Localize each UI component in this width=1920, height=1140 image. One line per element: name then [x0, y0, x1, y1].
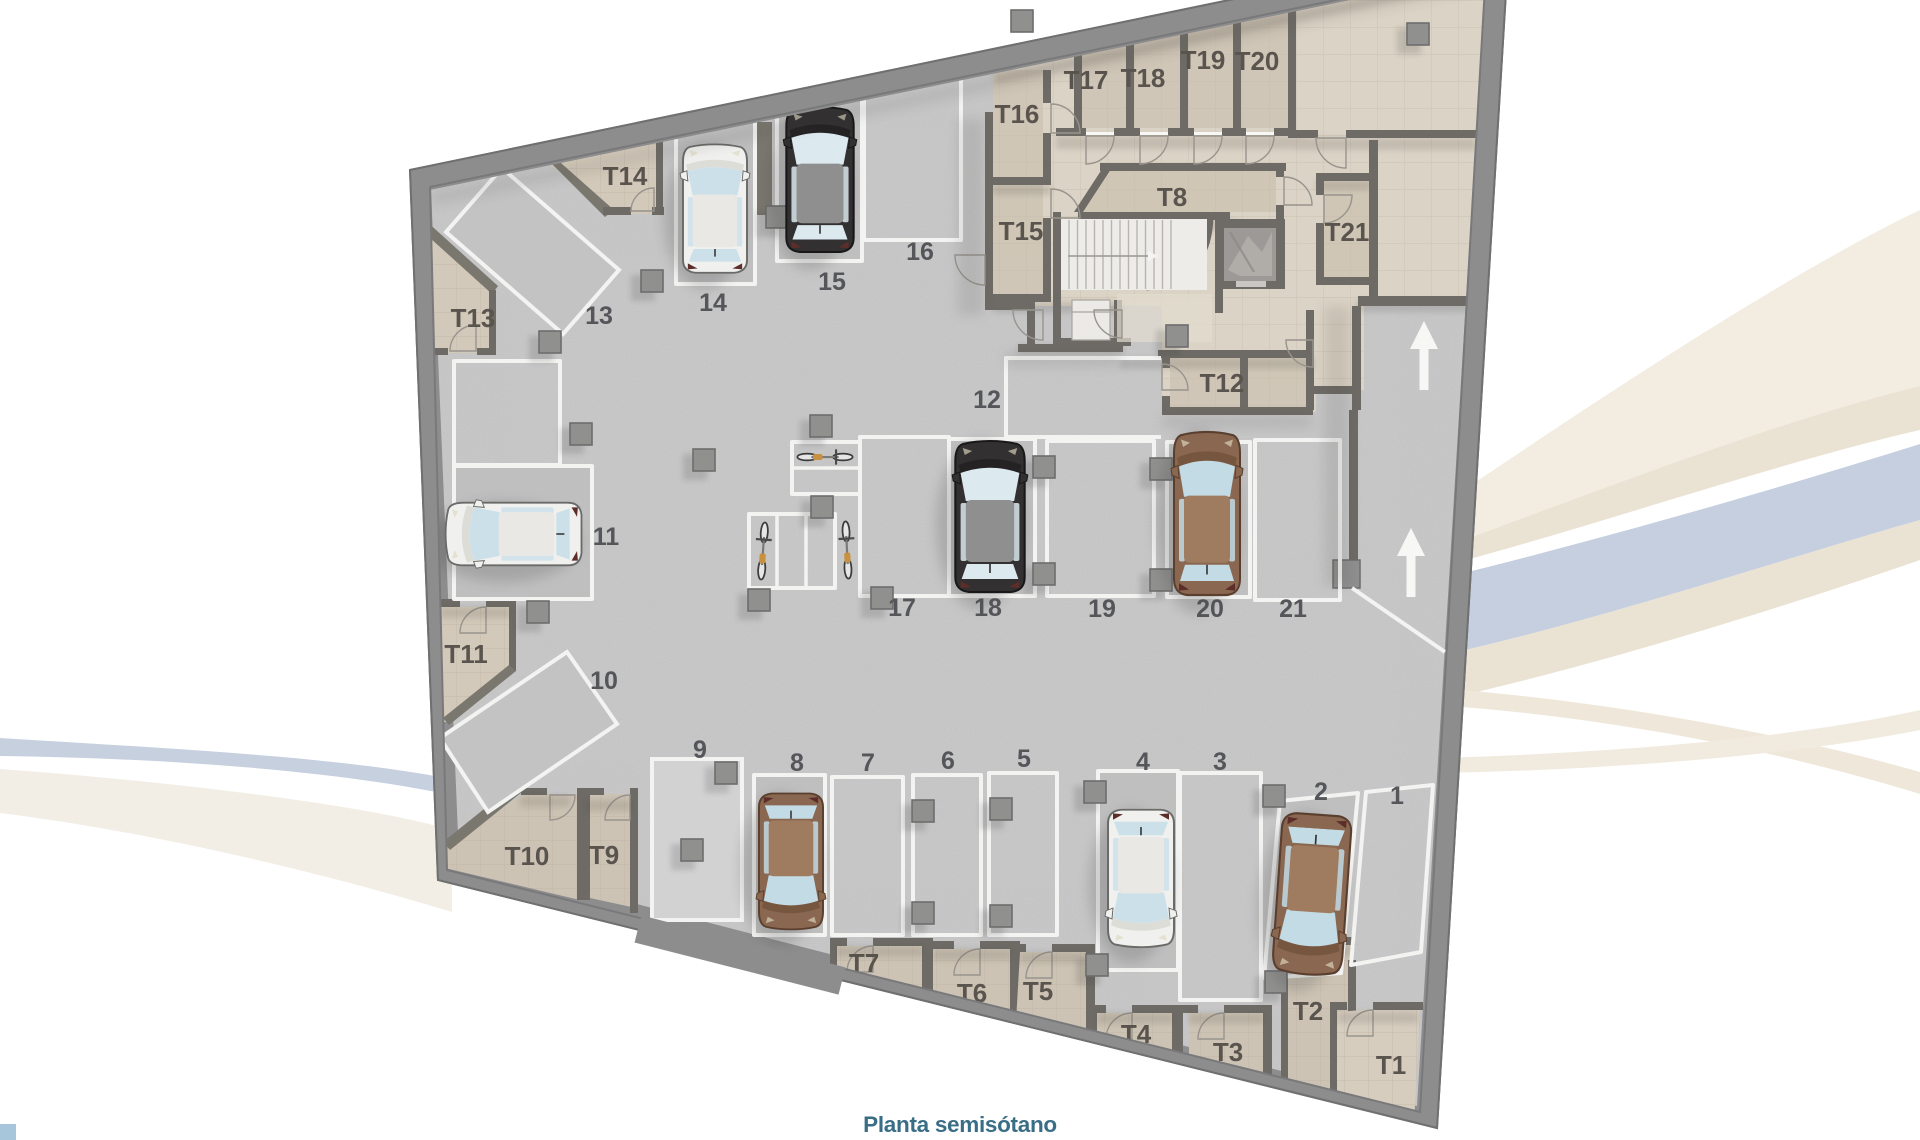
svg-text:T16: T16 — [995, 99, 1040, 129]
svg-text:14: 14 — [699, 289, 727, 317]
svg-text:10: 10 — [590, 667, 618, 695]
svg-text:8: 8 — [790, 749, 804, 777]
svg-text:Planta semisótano: Planta semisótano — [863, 1112, 1057, 1137]
svg-text:9: 9 — [693, 736, 707, 764]
svg-text:T18: T18 — [1121, 63, 1166, 93]
svg-text:7: 7 — [861, 749, 875, 777]
svg-text:T2: T2 — [1293, 996, 1323, 1026]
svg-text:T8: T8 — [1157, 182, 1187, 212]
svg-text:21: 21 — [1279, 595, 1307, 623]
svg-text:13: 13 — [585, 302, 613, 330]
svg-text:19: 19 — [1088, 595, 1116, 623]
svg-text:17: 17 — [888, 594, 916, 622]
svg-text:6: 6 — [941, 747, 955, 775]
svg-text:4: 4 — [1136, 748, 1150, 776]
svg-text:T15: T15 — [999, 216, 1044, 246]
svg-text:T21: T21 — [1325, 217, 1370, 247]
svg-text:12: 12 — [973, 386, 1001, 414]
svg-text:T20: T20 — [1235, 46, 1280, 76]
svg-text:T1: T1 — [1376, 1050, 1406, 1080]
svg-text:T11: T11 — [444, 639, 487, 669]
svg-text:11: 11 — [593, 523, 620, 551]
svg-text:T12: T12 — [1200, 368, 1245, 398]
svg-text:16: 16 — [906, 238, 934, 266]
svg-text:3: 3 — [1213, 748, 1227, 776]
svg-text:T9: T9 — [589, 840, 619, 870]
svg-text:T19: T19 — [1181, 45, 1226, 75]
svg-text:15: 15 — [818, 268, 846, 296]
svg-text:T13: T13 — [451, 303, 496, 333]
svg-text:T5: T5 — [1023, 976, 1053, 1006]
svg-text:5: 5 — [1017, 745, 1031, 773]
svg-text:2: 2 — [1314, 778, 1328, 806]
svg-text:1: 1 — [1390, 782, 1404, 810]
svg-text:T10: T10 — [505, 841, 550, 871]
